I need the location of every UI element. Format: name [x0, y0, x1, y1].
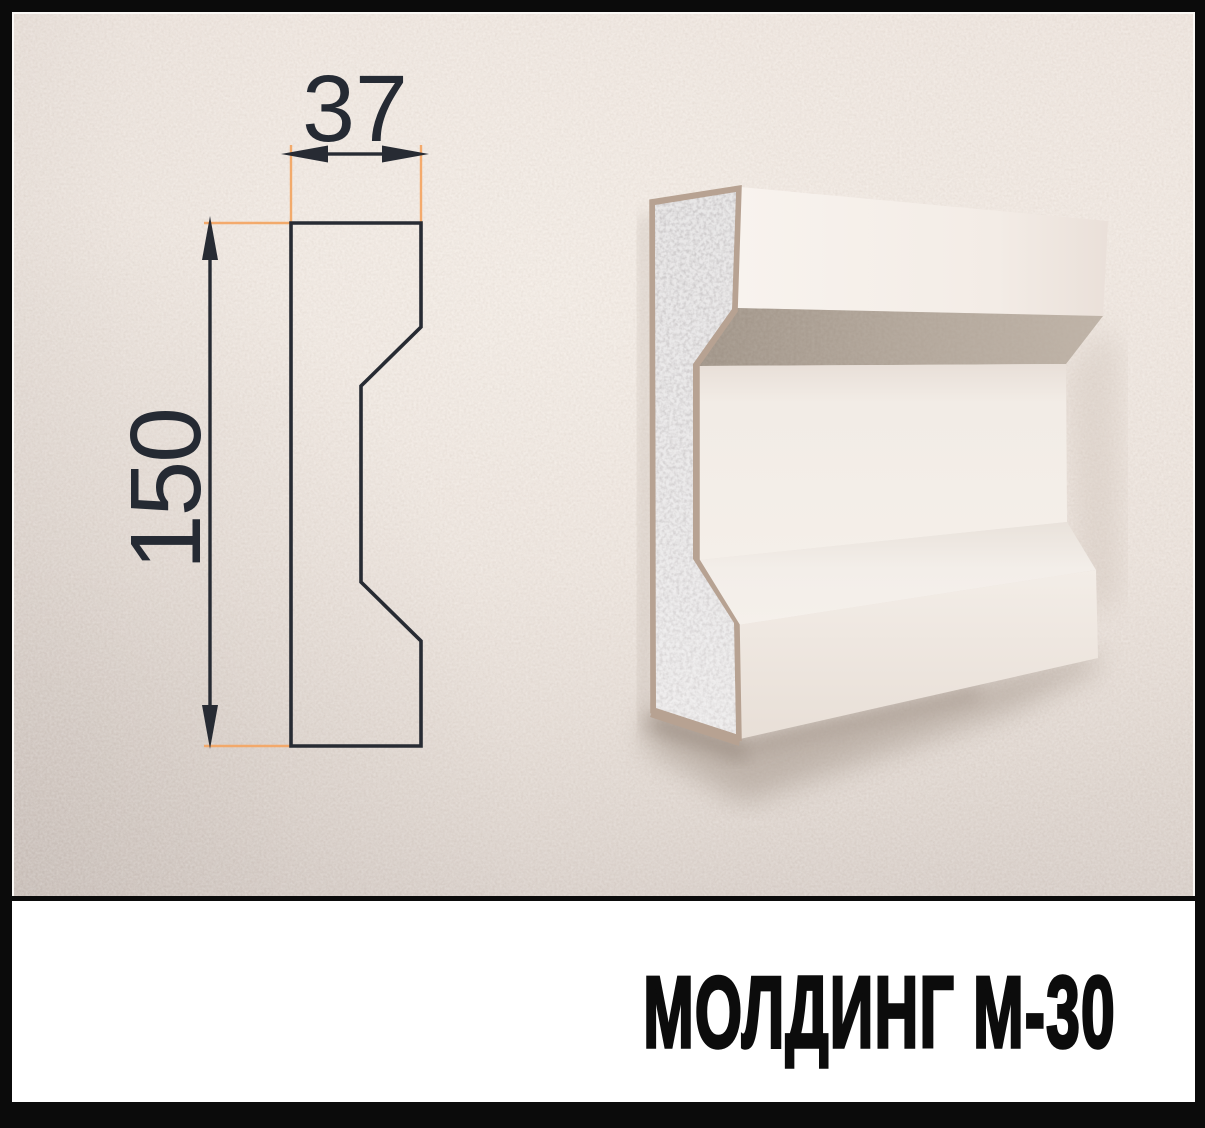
svg-text:37: 37: [302, 56, 408, 162]
svg-text:150: 150: [110, 409, 222, 570]
